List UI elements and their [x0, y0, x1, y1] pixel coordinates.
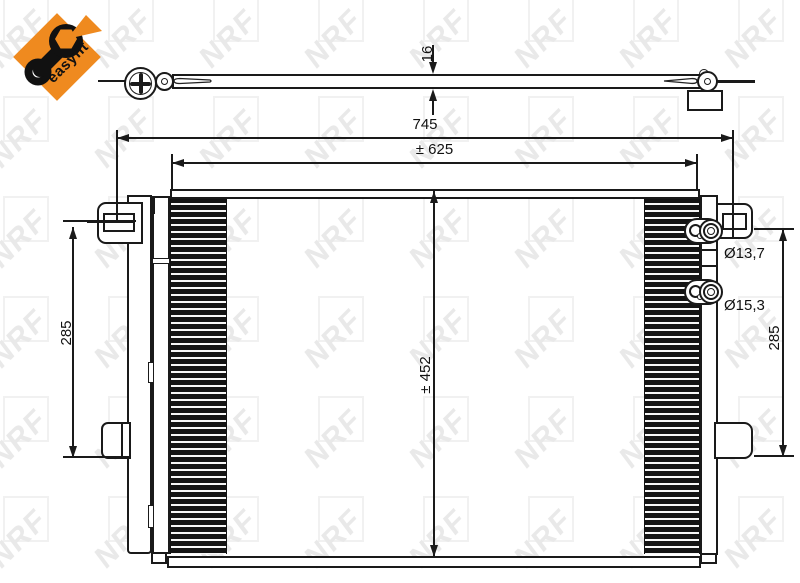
- dim-285L-arrow-up: [69, 227, 77, 239]
- dim-625-arrow-right: [685, 159, 697, 167]
- dim-left-height-label: 285: [58, 304, 76, 362]
- dim-625-line: [172, 162, 697, 164]
- dim-285R-arrow-up: [779, 229, 787, 241]
- dim-core-height-label: ± 452: [417, 345, 435, 405]
- dimensions: 745 ± 625 ± 452 285 285 Ø13,7 Ø15,3: [0, 0, 800, 583]
- dim-452-arrow-up: [430, 191, 438, 203]
- dim-core-width-label: ± 625: [172, 141, 697, 158]
- dim-right-height-label: 285: [766, 309, 784, 367]
- wrench-icon: [4, 8, 108, 112]
- dim-745-arrow-right: [721, 134, 733, 142]
- dim-285L-ext-top: [63, 220, 136, 222]
- dim-745-arrow-left: [117, 134, 129, 142]
- dim-285R-ext-top: [754, 228, 794, 230]
- dim-745-line: [117, 137, 733, 139]
- dim-745-ext-left: [116, 130, 118, 223]
- dim-port-top-label: Ø13,7: [724, 245, 786, 262]
- easyfit-badge: easyfit: [0, 0, 120, 120]
- drawing-canvas: NRFNRFNRFNRFNRFNRFNRFNRFNRFNRFNRFNRFNRFN…: [0, 0, 800, 583]
- dim-285R-arrow-down: [779, 445, 787, 457]
- dim-port-bottom-label: Ø15,3: [724, 297, 786, 314]
- dim-285R-ext-bottom: [754, 455, 794, 457]
- dim-625-arrow-left: [172, 159, 184, 167]
- dim-overall-width-label: 745: [117, 116, 733, 133]
- dim-745-ext-right: [732, 130, 734, 237]
- dim-285L-arrow-down: [69, 446, 77, 458]
- dim-452-arrow-down: [430, 545, 438, 557]
